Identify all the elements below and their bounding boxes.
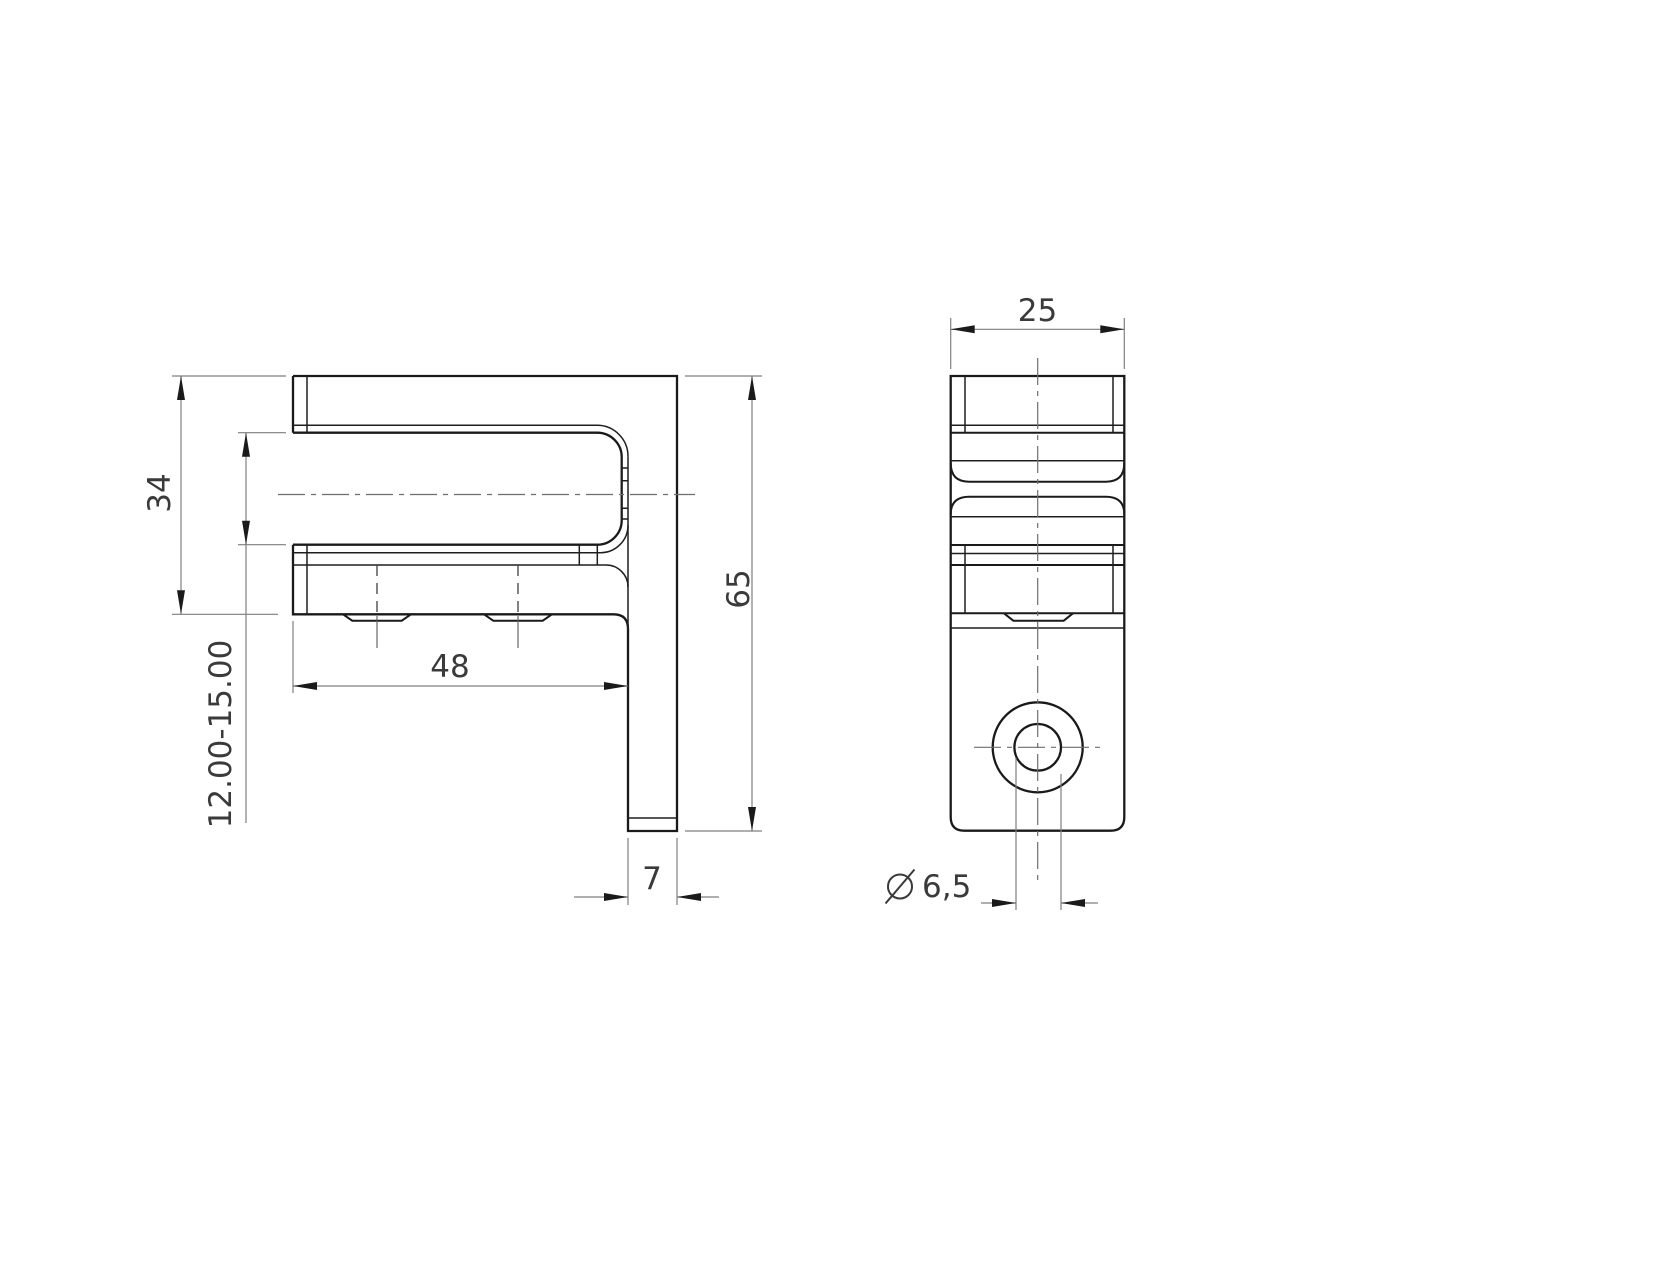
front-countersink <box>1004 613 1073 620</box>
dim-12-15-lines <box>238 433 286 823</box>
dim-label-overall-height: 65 <box>721 569 757 608</box>
dimension-12-15: 12.00-15.00 <box>203 433 286 829</box>
dim-label-clamp-height: 34 <box>142 473 178 512</box>
dim-label-leg-thickness: 7 <box>642 861 662 897</box>
dimension-48: 48 <box>293 621 628 693</box>
dim-label-clamp-range: 12.00-15.00 <box>203 640 239 829</box>
slot-profile <box>293 433 622 545</box>
lower-jaw-step-box <box>579 545 597 565</box>
dimension-25: 25 <box>951 293 1125 369</box>
dim-label-hole-diameter: 6,5 <box>922 869 971 905</box>
front-view-dimensions: 25 6,5 <box>886 293 1125 910</box>
front-view <box>951 358 1125 884</box>
dimension-34: 34 <box>142 376 286 614</box>
diameter-symbol-icon <box>886 870 915 904</box>
side-view <box>278 376 695 831</box>
dim-dia-lines <box>981 758 1098 910</box>
dimension-65: 65 <box>685 376 762 831</box>
lower-jaw-face-line <box>293 565 628 587</box>
dim-label-body-depth: 25 <box>1018 293 1057 329</box>
dim-34-lines <box>172 376 286 614</box>
dim-label-body-width: 48 <box>430 649 469 685</box>
technical-drawing-canvas: 34 12.00-15.00 48 65 7 <box>0 0 1680 1261</box>
slot-tangent-top <box>293 425 628 456</box>
drawing-page: 34 12.00-15.00 48 65 7 <box>0 0 1680 1261</box>
side-view-dimensions: 34 12.00-15.00 48 65 7 <box>142 376 762 905</box>
front-side-edges <box>965 376 1113 613</box>
dim-dia-arrows <box>992 899 1085 907</box>
dimension-7: 7 <box>574 838 719 905</box>
slot-tangent-bottom <box>293 525 628 553</box>
